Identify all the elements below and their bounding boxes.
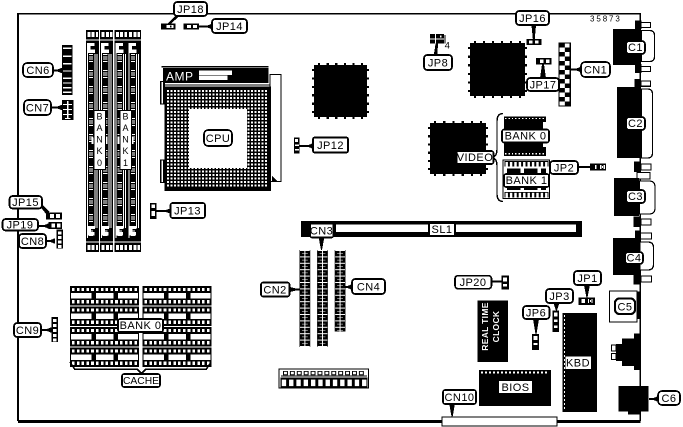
svg-text:BIOS: BIOS bbox=[501, 382, 529, 394]
svg-text:C5: C5 bbox=[618, 302, 633, 314]
svg-text:CACHE: CACHE bbox=[123, 376, 159, 387]
svg-text:K: K bbox=[96, 146, 102, 156]
svg-text:JP20: JP20 bbox=[460, 277, 487, 289]
svg-text:C3: C3 bbox=[628, 191, 643, 203]
svg-text:JP17: JP17 bbox=[530, 80, 557, 92]
svg-text:JP2: JP2 bbox=[554, 163, 574, 175]
svg-text:N: N bbox=[96, 135, 103, 145]
svg-text:JP19: JP19 bbox=[7, 220, 34, 232]
svg-text:JP16: JP16 bbox=[519, 13, 546, 25]
svg-text:VIDEO: VIDEO bbox=[457, 152, 493, 164]
svg-text:CLOCK: CLOCK bbox=[491, 310, 501, 342]
svg-text:SL1: SL1 bbox=[432, 224, 453, 236]
svg-text:CN2: CN2 bbox=[263, 285, 286, 297]
svg-text:JP14: JP14 bbox=[216, 21, 243, 33]
svg-text:B: B bbox=[122, 112, 128, 122]
svg-text:JP18: JP18 bbox=[177, 4, 204, 16]
svg-text:CN1: CN1 bbox=[584, 65, 607, 77]
svg-text:C2: C2 bbox=[628, 118, 643, 130]
svg-text:CN10: CN10 bbox=[445, 392, 475, 404]
svg-text:CN7: CN7 bbox=[26, 103, 49, 115]
svg-text:CN3: CN3 bbox=[310, 226, 333, 238]
svg-text:BANK 0: BANK 0 bbox=[505, 131, 547, 143]
svg-text:C4: C4 bbox=[627, 253, 642, 265]
svg-text:CN4: CN4 bbox=[357, 282, 380, 294]
svg-text:A: A bbox=[96, 123, 102, 133]
svg-text:B: B bbox=[96, 112, 102, 122]
svg-text:REAL TIME: REAL TIME bbox=[480, 302, 490, 350]
svg-text:JP3: JP3 bbox=[549, 291, 569, 303]
svg-text:0: 0 bbox=[97, 158, 102, 168]
svg-text:N: N bbox=[122, 135, 129, 145]
svg-text:1: 1 bbox=[123, 158, 128, 168]
svg-text:JP8: JP8 bbox=[428, 58, 448, 70]
svg-text:AMP: AMP bbox=[166, 70, 194, 84]
svg-text:CPU: CPU bbox=[206, 133, 231, 145]
svg-text:JP1: JP1 bbox=[577, 273, 597, 285]
svg-text:CN9: CN9 bbox=[16, 325, 39, 337]
svg-text:JP13: JP13 bbox=[174, 206, 201, 218]
svg-text:A: A bbox=[122, 123, 128, 133]
svg-text:C6: C6 bbox=[662, 393, 677, 405]
svg-text:4: 4 bbox=[445, 41, 450, 52]
svg-text:35873: 35873 bbox=[590, 15, 622, 24]
svg-text:CN6: CN6 bbox=[26, 65, 49, 77]
svg-text:BANK 0: BANK 0 bbox=[120, 320, 162, 332]
svg-text:K: K bbox=[122, 146, 128, 156]
svg-text:JP15: JP15 bbox=[12, 197, 39, 209]
svg-text:CN8: CN8 bbox=[21, 236, 44, 248]
svg-text:JP6: JP6 bbox=[526, 308, 546, 320]
svg-text:KBD: KBD bbox=[566, 358, 590, 370]
svg-text:JP12: JP12 bbox=[317, 140, 344, 152]
svg-text:BANK 1: BANK 1 bbox=[506, 175, 548, 187]
svg-text:C1: C1 bbox=[628, 42, 643, 54]
